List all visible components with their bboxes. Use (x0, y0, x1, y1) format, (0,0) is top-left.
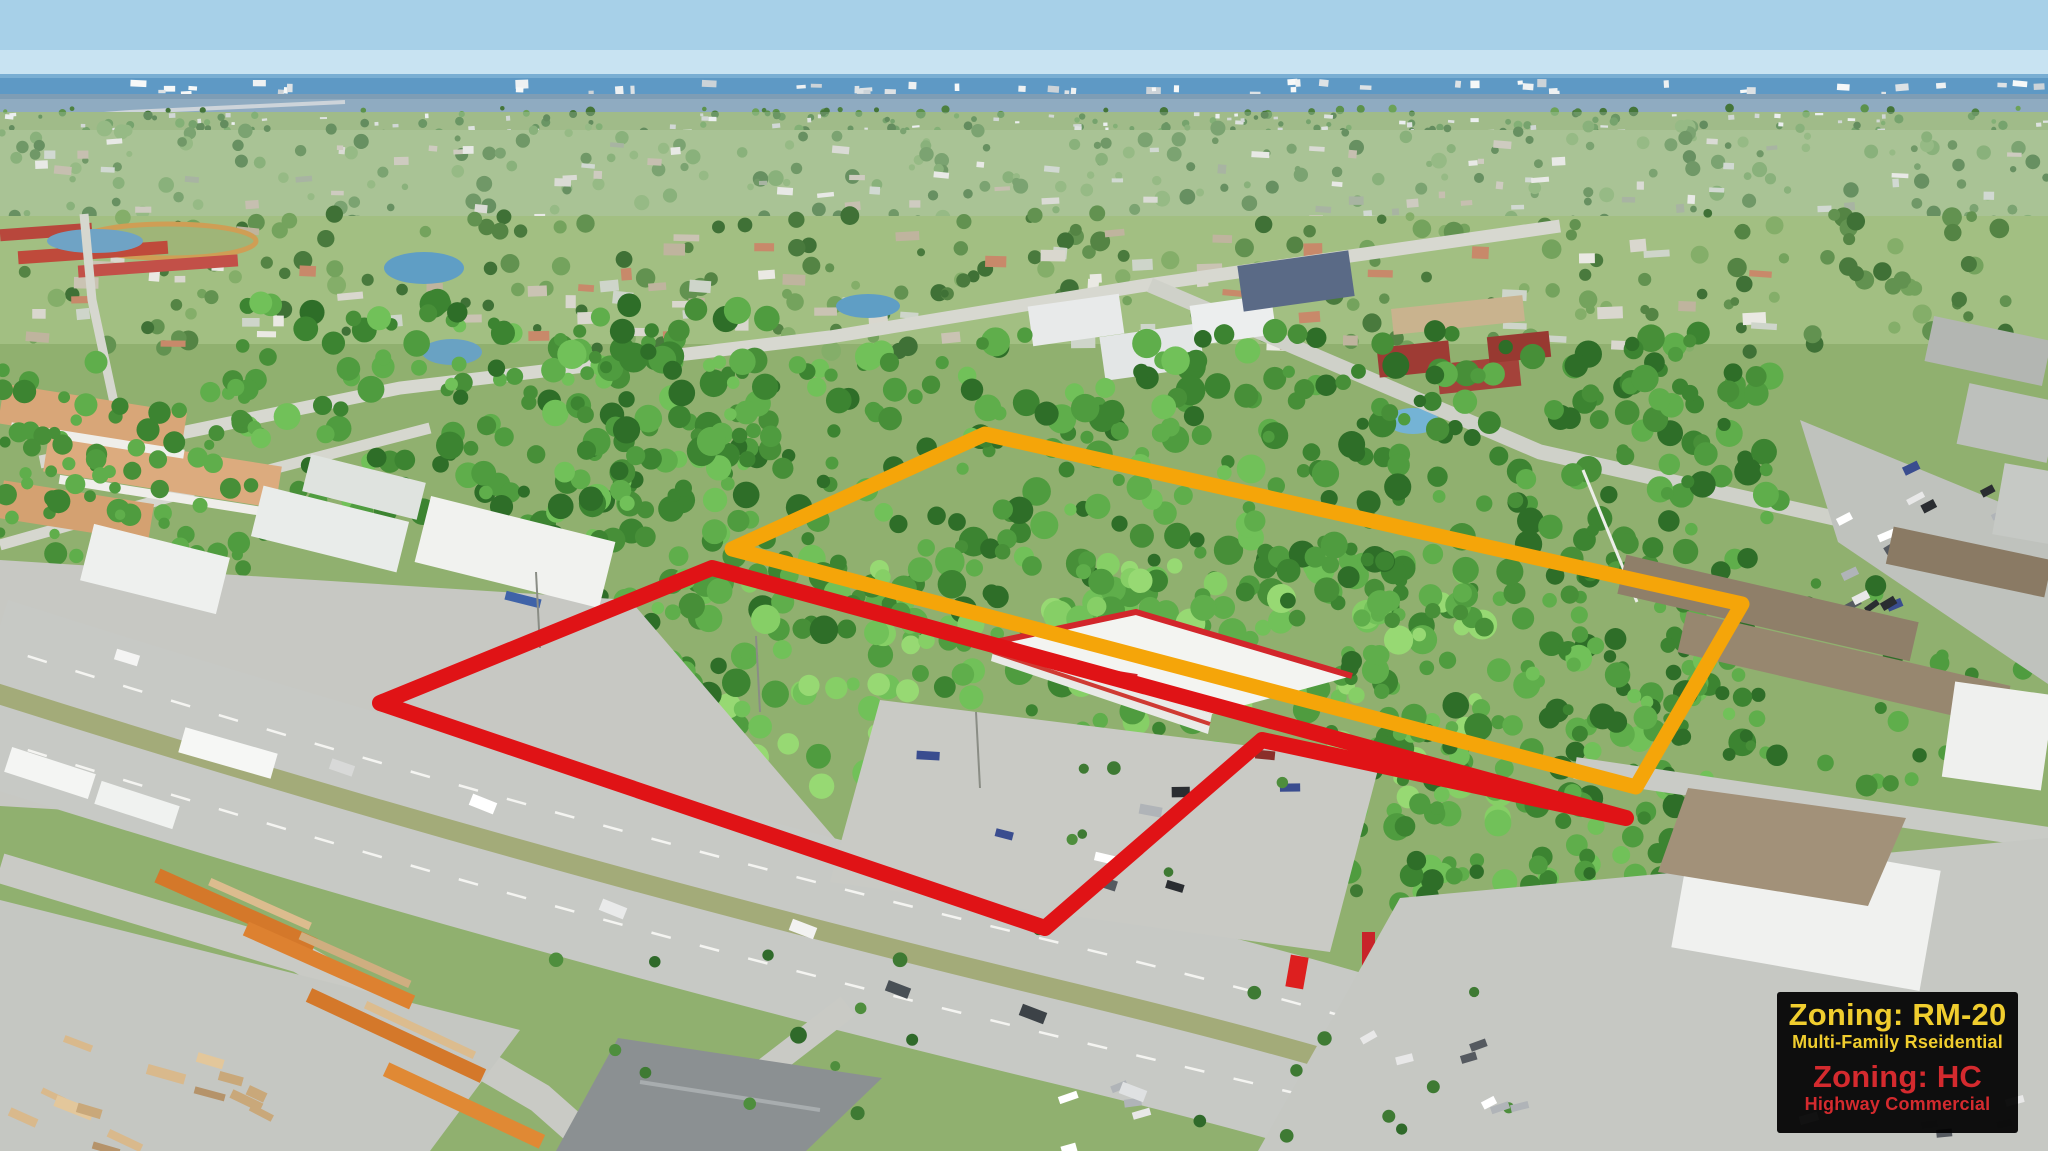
zoning-hc-description: Highway Commercial (1805, 1095, 1991, 1114)
zoning-rm20-label: Zoning: RM-20 (1789, 999, 2007, 1032)
zoning-hc-label: Zoning: HC (1813, 1061, 1982, 1094)
zoning-info-box: Zoning: RM-20 Multi-Family Rseidential Z… (1777, 992, 2018, 1133)
aerial-photo (0, 0, 2048, 1151)
zoning-rm20-description: Multi-Family Rseidential (1792, 1033, 2003, 1052)
aerial-listing-photo: Zoning: RM-20 Multi-Family Rseidential Z… (0, 0, 2048, 1151)
